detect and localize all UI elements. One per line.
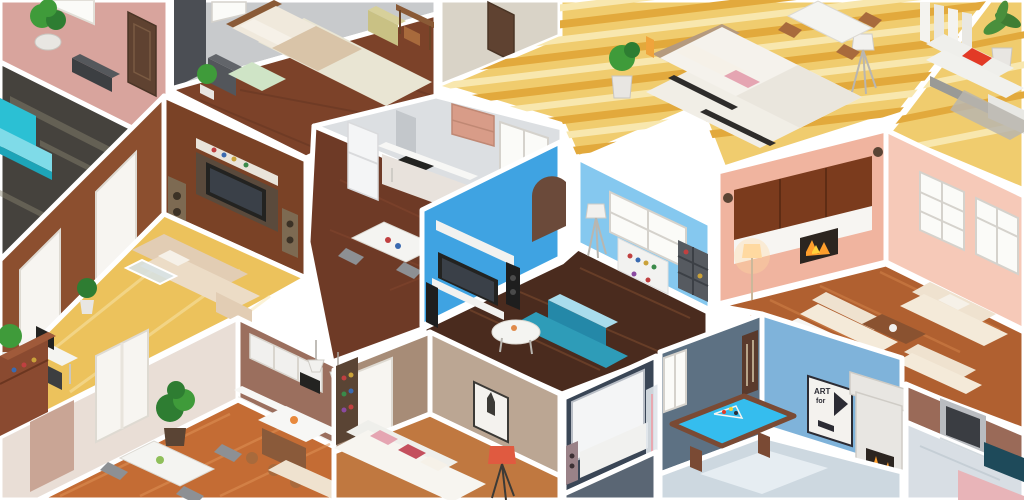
hallway-door <box>128 12 156 96</box>
poster-line1: ART <box>814 387 831 396</box>
bowl <box>511 325 517 331</box>
wall-speaker <box>873 147 883 157</box>
pitcher <box>290 416 298 424</box>
wall-speaker <box>723 193 733 203</box>
bottle <box>385 237 391 243</box>
poster-line2: for <box>816 398 826 405</box>
fridge <box>348 122 378 200</box>
cue-rack <box>742 330 758 396</box>
bottle <box>395 243 401 249</box>
salad-bowl <box>156 456 164 464</box>
scene-canvas: ART for <box>0 0 1024 500</box>
tray <box>889 324 897 332</box>
theater-speakers <box>566 441 578 485</box>
isometric-home-collage: ART for <box>0 0 1024 500</box>
